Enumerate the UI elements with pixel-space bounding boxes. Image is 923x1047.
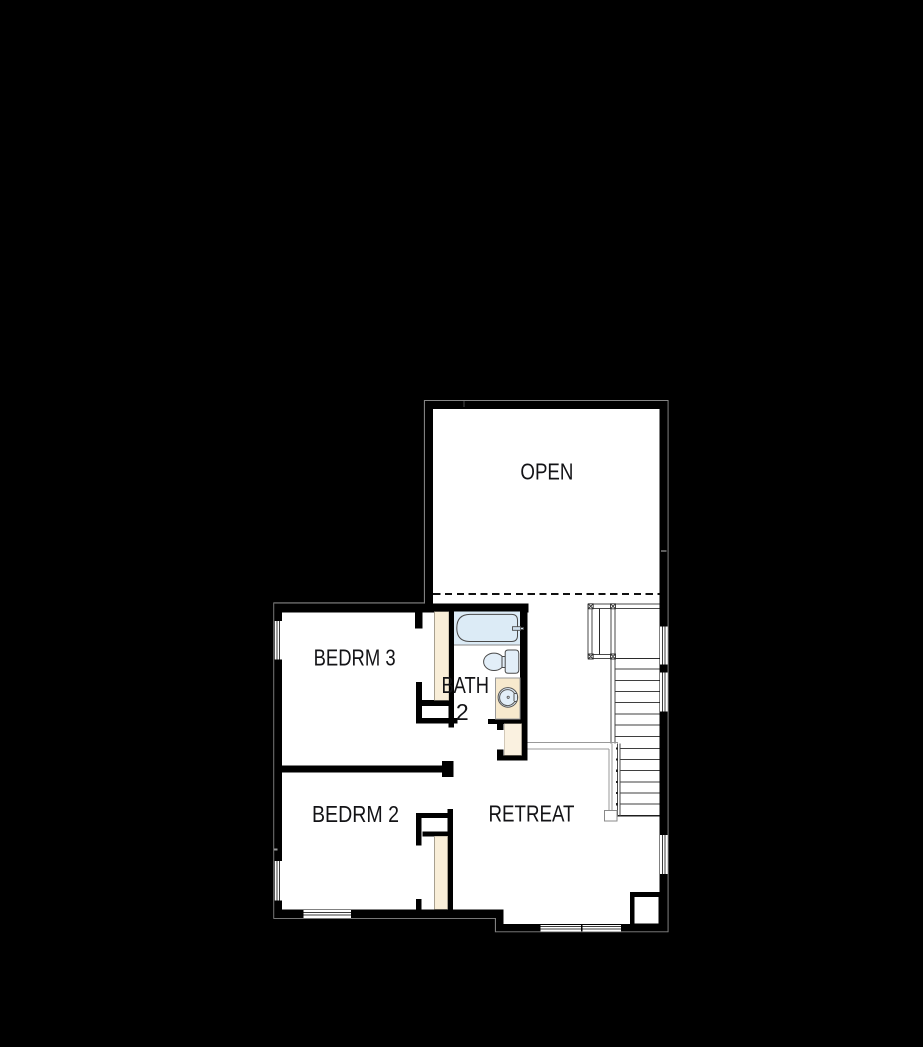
svg-text:BATH: BATH <box>441 672 489 698</box>
svg-text:RETREAT: RETREAT <box>489 801 575 827</box>
svg-text:BEDRM 3: BEDRM 3 <box>314 645 396 671</box>
svg-text:OPEN: OPEN <box>520 459 573 485</box>
svg-text:BEDRM 2: BEDRM 2 <box>312 801 399 827</box>
svg-text:2: 2 <box>456 699 469 725</box>
